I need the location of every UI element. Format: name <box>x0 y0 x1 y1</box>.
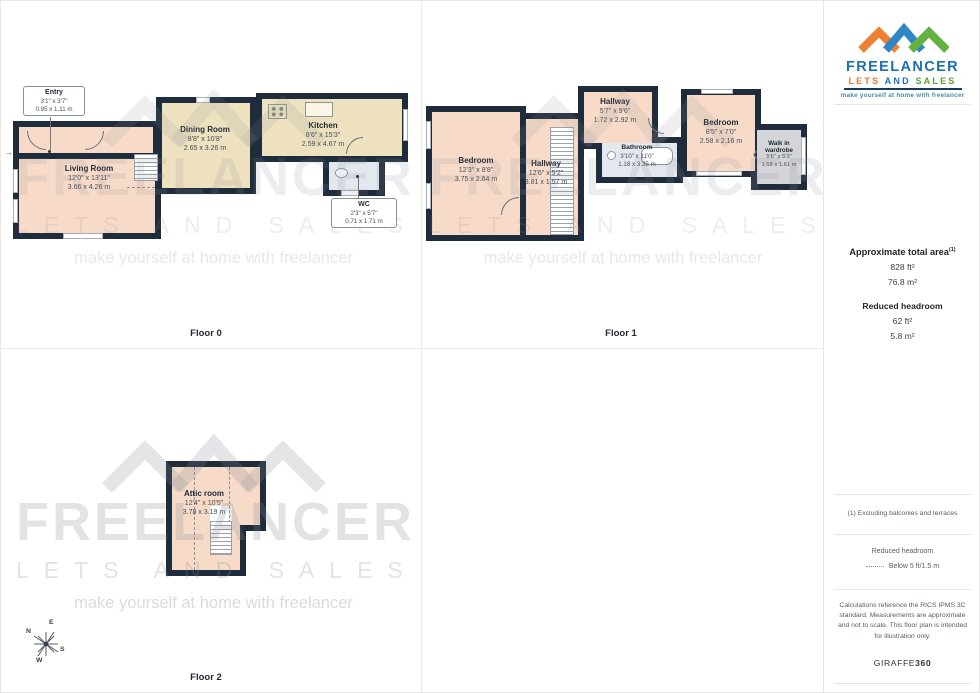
window <box>426 183 431 209</box>
room-hallway-top <box>584 92 652 143</box>
brand-name: FREELANCER <box>824 59 980 75</box>
dashed-line-icon <box>866 566 884 567</box>
compass-star-icon <box>17 615 75 673</box>
sidebar-divider <box>834 534 971 535</box>
callout-line <box>50 117 51 150</box>
sidebar: FREELANCER LETS AND SALES make yourself … <box>823 1 980 693</box>
area-footnote-marker: (1) <box>949 247 956 253</box>
window <box>403 109 408 141</box>
floor1-label: Floor 1 <box>605 328 637 339</box>
sidebar-divider <box>834 589 971 590</box>
legend-row: Below 5 ft/1.5 m <box>836 563 969 570</box>
room-bedroom-left <box>432 112 520 235</box>
window <box>196 97 210 103</box>
horizontal-divider <box>1 348 823 349</box>
logo-houses-icon <box>857 23 949 53</box>
headroom-m: 5.8 m² <box>824 331 980 341</box>
room-dining <box>162 103 250 188</box>
entry-arrow-icon: → <box>4 148 13 157</box>
area-ft: 828 ft² <box>824 262 980 272</box>
floor2-label: Floor 2 <box>190 672 222 683</box>
window <box>63 233 103 239</box>
window <box>341 190 359 196</box>
floor0-label: Floor 0 <box>190 328 222 339</box>
floorplan-page: FREELANCER LETS AND SALES make yourself … <box>0 0 980 693</box>
room-wardrobe <box>757 130 801 184</box>
callout-line <box>358 178 359 198</box>
window <box>696 171 742 176</box>
vertical-divider <box>421 1 422 693</box>
area-title: Approximate total area(1) <box>824 247 980 257</box>
stairs-floor1 <box>550 127 574 235</box>
window <box>801 137 806 175</box>
stove-icon <box>268 104 287 119</box>
headroom-dash-line <box>194 467 195 570</box>
area-m: 76.8 m² <box>824 277 980 287</box>
legend-value: Below 5 ft/1.5 m <box>889 563 939 570</box>
legend-title: Reduced headroom <box>836 548 969 555</box>
stairs-floor0 <box>134 154 158 181</box>
kitchen-counter-icon <box>305 102 333 117</box>
window <box>426 121 431 149</box>
headroom-dash-line <box>229 467 230 523</box>
compass-rose: N E S W <box>17 615 75 673</box>
callout-dot <box>48 150 51 153</box>
window <box>13 169 18 193</box>
callout-wc: WC 2'3" x 5'7" 0.71 x 1.71 m <box>331 198 397 228</box>
brand-subtitle: LETS AND SALES <box>824 76 980 86</box>
sidebar-divider <box>834 494 971 495</box>
logo-rule <box>844 88 962 90</box>
stairs-floor2 <box>210 521 232 555</box>
window <box>13 199 18 223</box>
area-summary: Approximate total area(1) 828 ft² 76.8 m… <box>824 247 980 341</box>
brand-logo: FREELANCER LETS AND SALES make yourself … <box>824 23 980 99</box>
compass-e-label: E <box>49 619 54 626</box>
sink-icon <box>607 151 616 160</box>
sidebar-divider <box>834 683 971 684</box>
headroom-ft: 62 ft² <box>824 316 980 326</box>
compass-n-label: N <box>26 628 31 635</box>
bathtub-icon <box>641 147 673 165</box>
callout-entry: Entry 3'1" x 3'7" 0.95 x 1.11 m <box>23 86 85 116</box>
giraffe360-logo: GIRAFFE360 <box>824 658 980 668</box>
compass-w-label: W <box>36 657 42 664</box>
headroom-dash <box>127 187 155 188</box>
headroom-title: Reduced headroom <box>824 301 980 311</box>
toilet-icon <box>335 168 348 178</box>
disclaimer-text: Calculations reference the RICS IPMS 3C … <box>836 601 969 642</box>
callout-dot <box>356 175 359 178</box>
sidebar-divider <box>834 104 971 105</box>
brand-tagline: make yourself at home with freelancer <box>824 92 980 99</box>
window <box>701 89 733 94</box>
wardrobe-door-chevron-icon: ❮ <box>752 151 759 159</box>
compass-s-label: S <box>60 646 65 653</box>
room-bedroom-right <box>687 95 755 171</box>
footnote-balconies: (1) Excluding balconies and terraces <box>836 509 969 519</box>
